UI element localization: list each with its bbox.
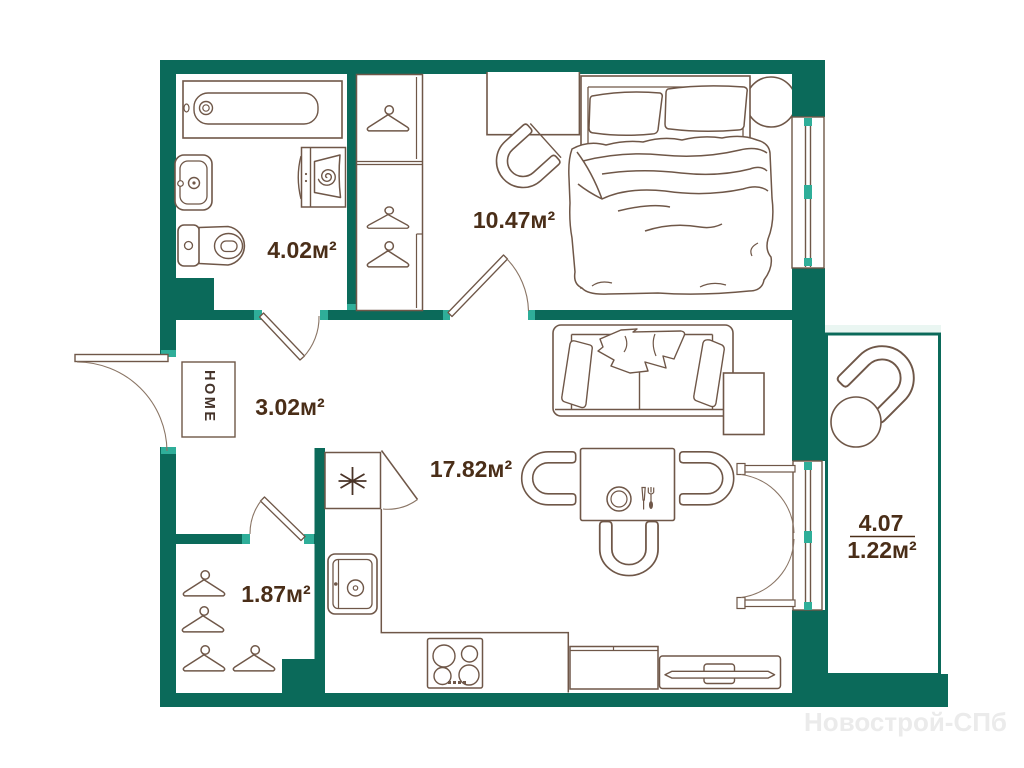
svg-text:HOME: HOME [201, 370, 217, 424]
svg-text:4.07: 4.07 [859, 510, 904, 536]
svg-text:1.22м²: 1.22м² [847, 537, 917, 563]
svg-text:3.02м²: 3.02м² [255, 394, 325, 420]
svg-text:17.82м²: 17.82м² [430, 456, 513, 482]
svg-text:10.47м²: 10.47м² [473, 207, 556, 233]
svg-text:Новострой-СПб: Новострой-СПб [804, 707, 1007, 737]
svg-text:4.02м²: 4.02м² [267, 237, 337, 263]
svg-text:1.87м²: 1.87м² [241, 581, 311, 607]
